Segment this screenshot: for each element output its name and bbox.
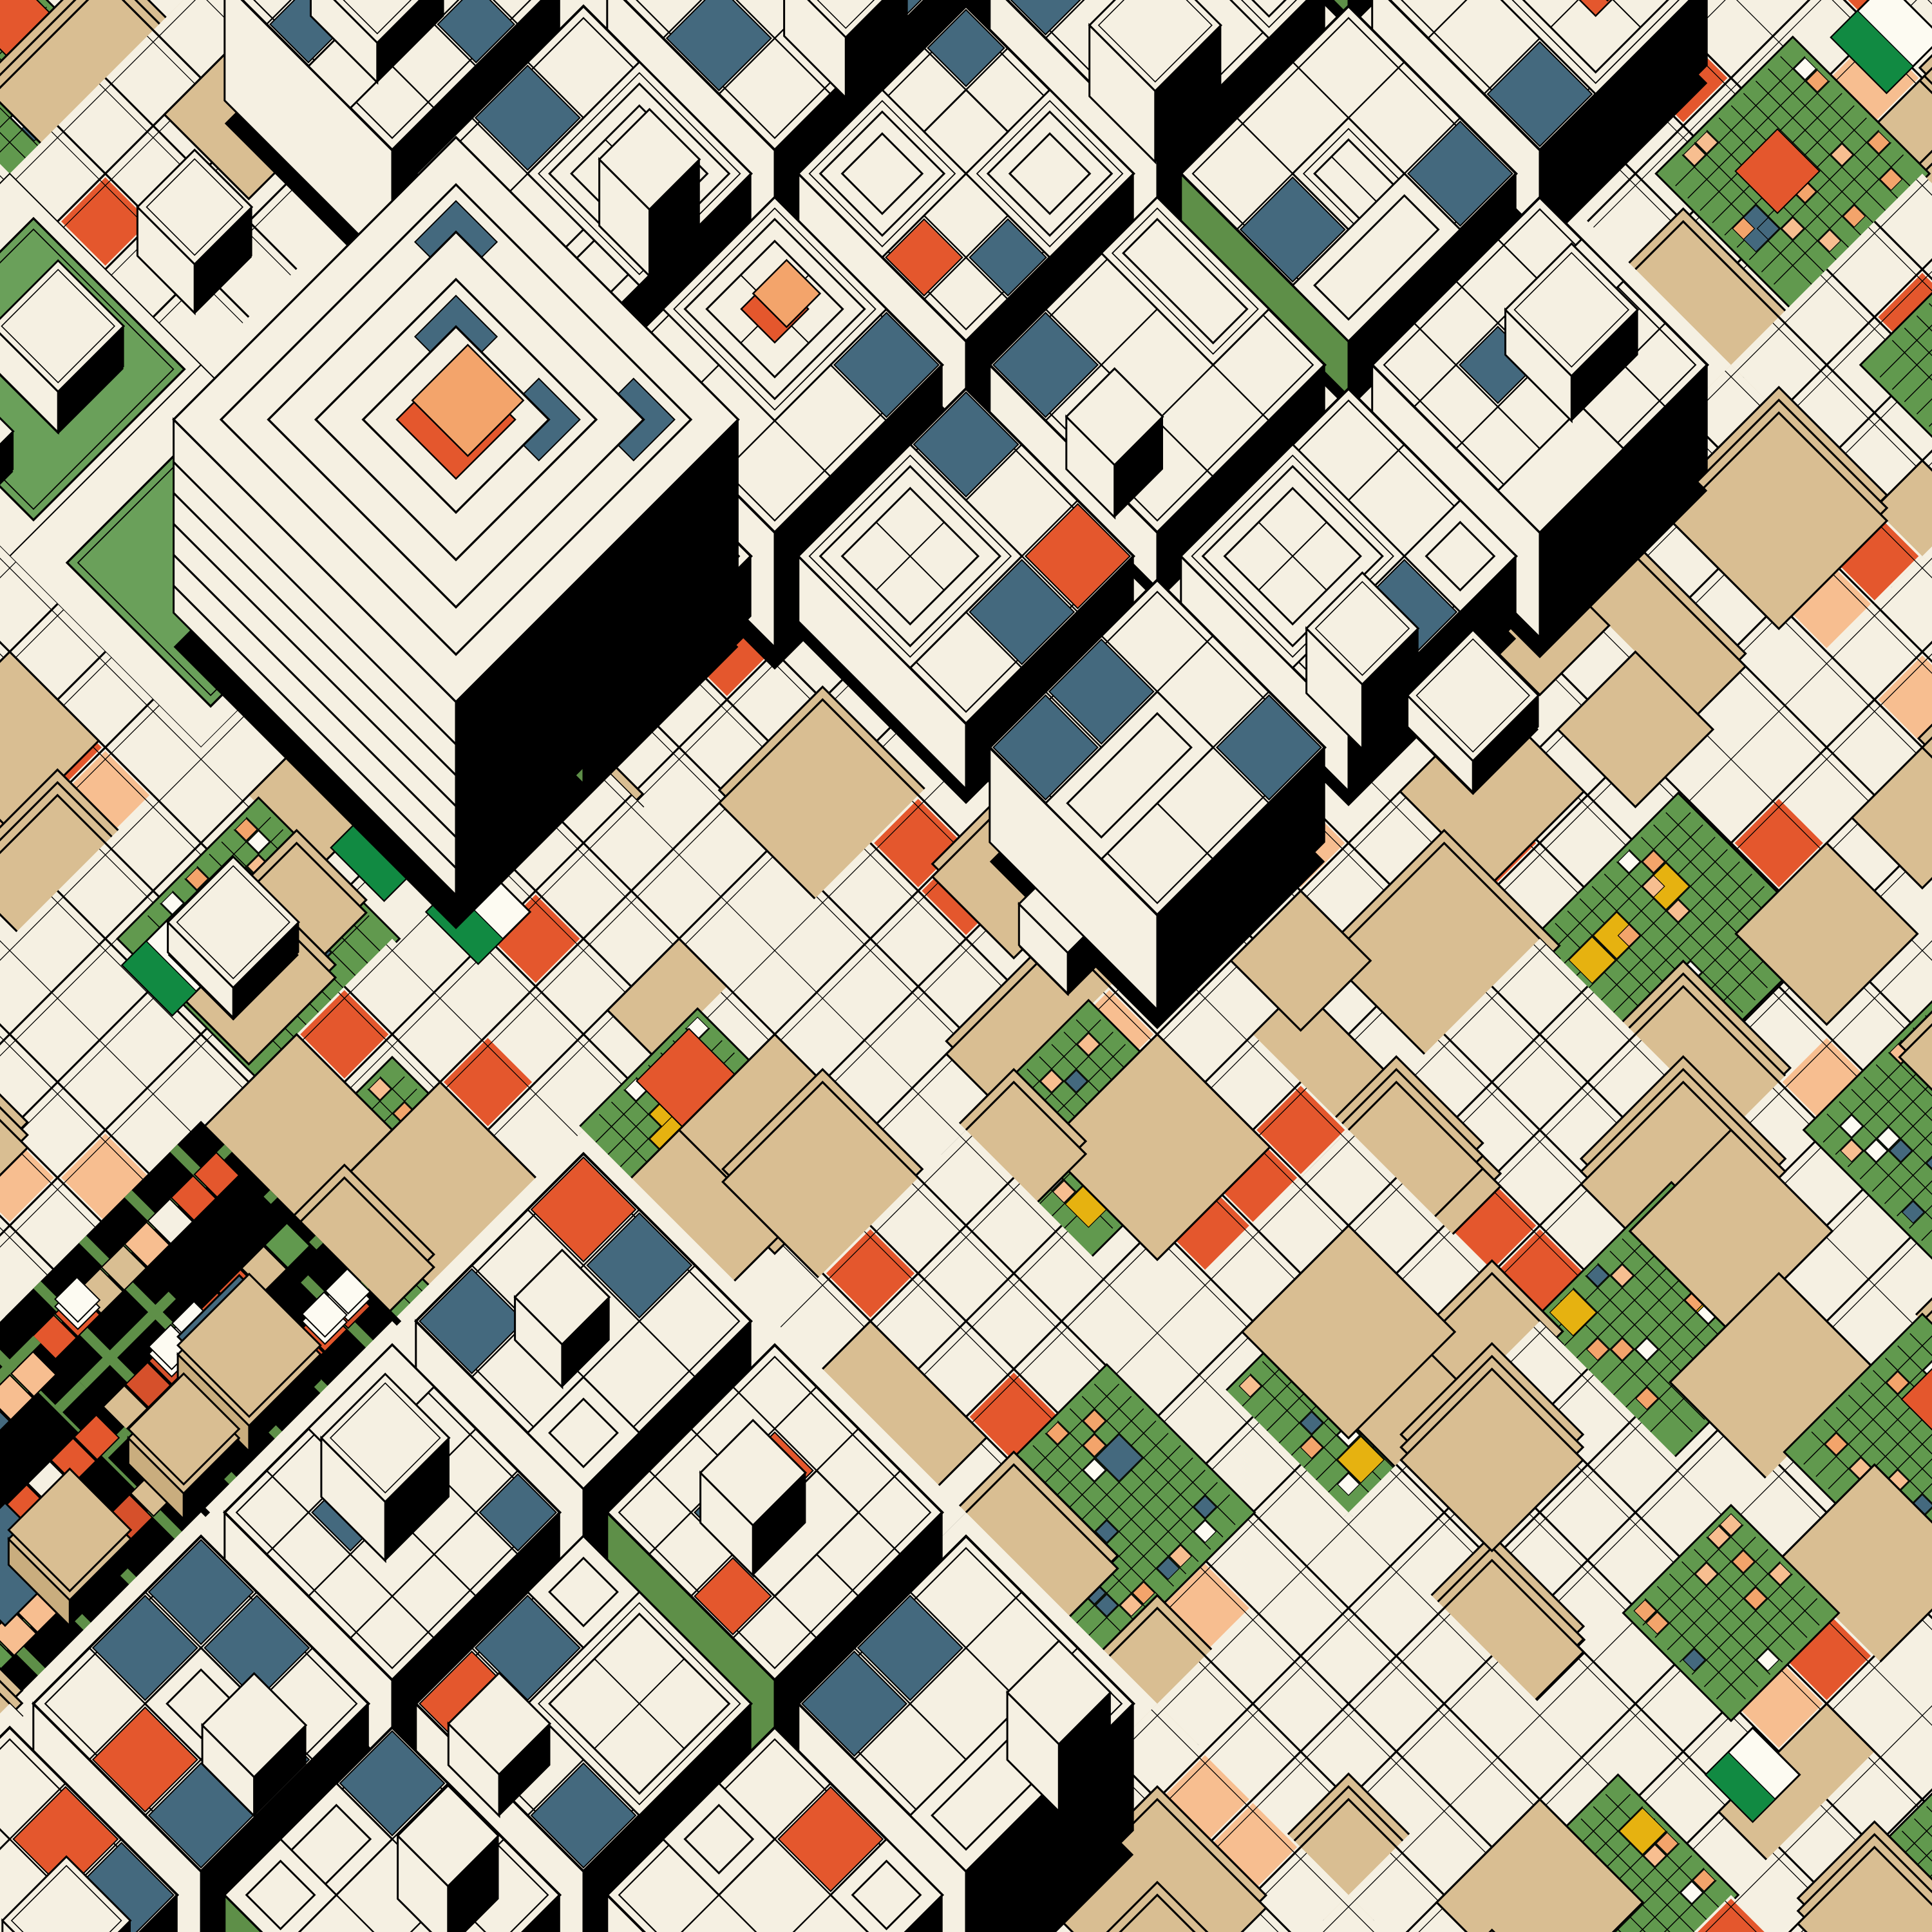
generative-city-artwork: Isometric generative city — cream blocks…	[0, 0, 1932, 1932]
city-scene-canvas: Isometric generative city — cream blocks…	[0, 0, 1932, 1932]
